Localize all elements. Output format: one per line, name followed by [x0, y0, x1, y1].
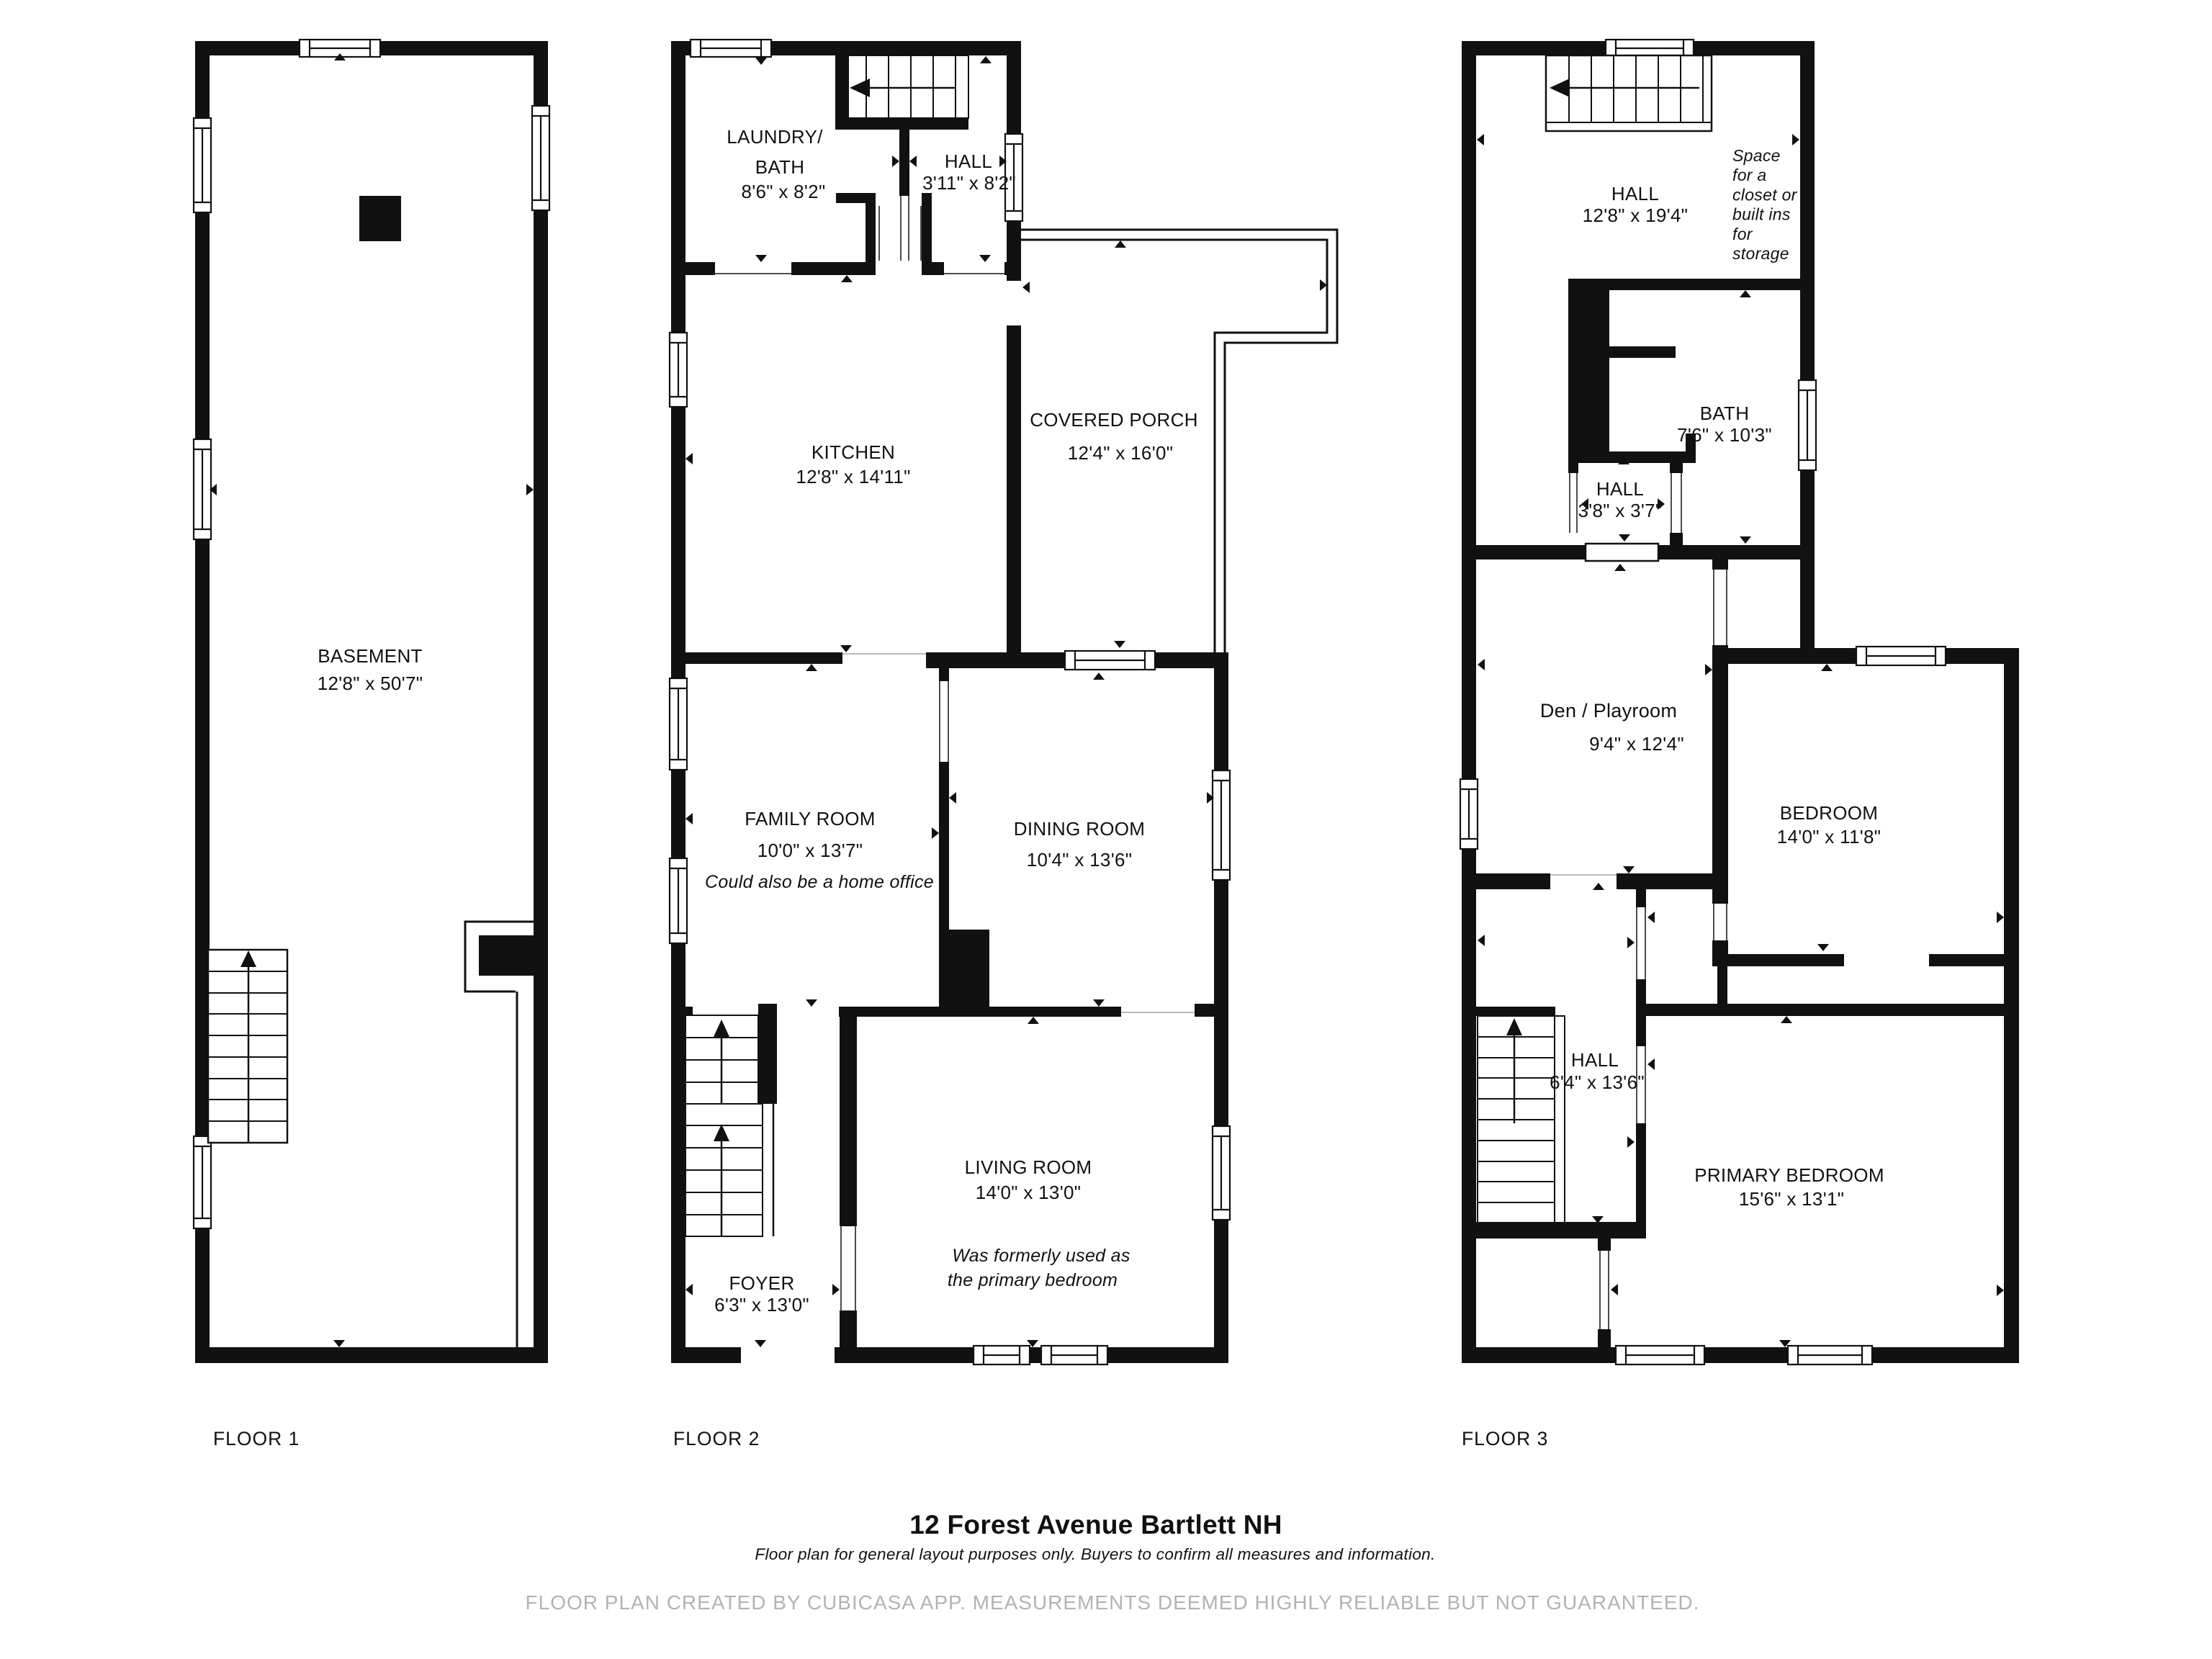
svg-text:14'0" x 13'0": 14'0" x 13'0" [976, 1182, 1082, 1203]
svg-text:Was formerly used as: Was formerly used as [952, 1246, 1130, 1266]
svg-text:BATH: BATH [755, 156, 805, 178]
svg-text:COVERED PORCH: COVERED PORCH [1030, 409, 1198, 431]
svg-text:FLOOR PLAN CREATED BY CUBICASA: FLOOR PLAN CREATED BY CUBICASA APP. MEAS… [526, 1591, 1700, 1614]
svg-text:LIVING ROOM: LIVING ROOM [965, 1156, 1092, 1178]
svg-text:LAUNDRY/: LAUNDRY/ [727, 126, 823, 148]
svg-text:built ins: built ins [1732, 205, 1791, 224]
svg-text:15'6" x 13'1": 15'6" x 13'1" [1739, 1188, 1845, 1210]
svg-text:FLOOR 1: FLOOR 1 [213, 1428, 300, 1449]
svg-text:for a: for a [1732, 166, 1767, 184]
svg-text:12'4" x 16'0": 12'4" x 16'0" [1068, 442, 1174, 464]
svg-text:DINING ROOM: DINING ROOM [1014, 818, 1145, 840]
svg-text:8'6" x 8'2": 8'6" x 8'2" [742, 181, 826, 202]
svg-text:6'4" x 13'6": 6'4" x 13'6" [1550, 1071, 1645, 1093]
svg-text:14'0" x 11'8": 14'0" x 11'8" [1777, 826, 1881, 848]
svg-text:9'4" x 12'4": 9'4" x 12'4" [1589, 733, 1684, 755]
svg-text:FOYER: FOYER [729, 1272, 794, 1294]
svg-text:HALL: HALL [1611, 183, 1659, 204]
svg-text:BEDROOM: BEDROOM [1780, 802, 1878, 824]
svg-text:BATH: BATH [1700, 403, 1750, 424]
svg-text:6'3" x 13'0": 6'3" x 13'0" [714, 1294, 809, 1316]
svg-text:10'4" x 13'6": 10'4" x 13'6" [1027, 849, 1133, 871]
svg-text:12'8" x 50'7": 12'8" x 50'7" [318, 673, 423, 694]
svg-text:HALL: HALL [1571, 1049, 1619, 1071]
svg-text:PRIMARY BEDROOM: PRIMARY BEDROOM [1694, 1164, 1884, 1186]
svg-text:12 Forest Avenue Bartlett NH: 12 Forest Avenue Bartlett NH [909, 1510, 1282, 1539]
svg-text:KITCHEN: KITCHEN [811, 441, 895, 463]
svg-text:FLOOR 3: FLOOR 3 [1462, 1428, 1548, 1449]
svg-text:7'6" x 10'3": 7'6" x 10'3" [1677, 424, 1772, 446]
svg-text:12'8" x 14'11": 12'8" x 14'11" [796, 466, 910, 487]
svg-text:12'8" x 19'4": 12'8" x 19'4" [1583, 204, 1689, 226]
svg-text:Space: Space [1732, 146, 1781, 165]
svg-text:HALL: HALL [945, 150, 992, 172]
svg-text:3'8" x 3'7": 3'8" x 3'7" [1578, 500, 1663, 521]
svg-text:3'11" x 8'2": 3'11" x 8'2" [922, 172, 1016, 194]
svg-text:storage: storage [1732, 244, 1789, 263]
svg-text:10'0" x 13'7": 10'0" x 13'7" [757, 840, 863, 861]
svg-text:for: for [1732, 225, 1753, 243]
svg-text:FAMILY ROOM: FAMILY ROOM [745, 808, 875, 829]
svg-text:closet or: closet or [1732, 185, 1798, 204]
svg-text:the primary bedroom: the primary bedroom [948, 1270, 1118, 1290]
svg-text:FLOOR 2: FLOOR 2 [673, 1428, 760, 1449]
svg-text:Floor plan for general layout: Floor plan for general layout purposes o… [755, 1545, 1435, 1563]
svg-text:Could also be a home office: Could also be a home office [705, 872, 934, 892]
svg-text:Den / Playroom: Den / Playroom [1540, 700, 1677, 721]
svg-text:HALL: HALL [1596, 478, 1644, 500]
svg-text:BASEMENT: BASEMENT [318, 645, 422, 667]
